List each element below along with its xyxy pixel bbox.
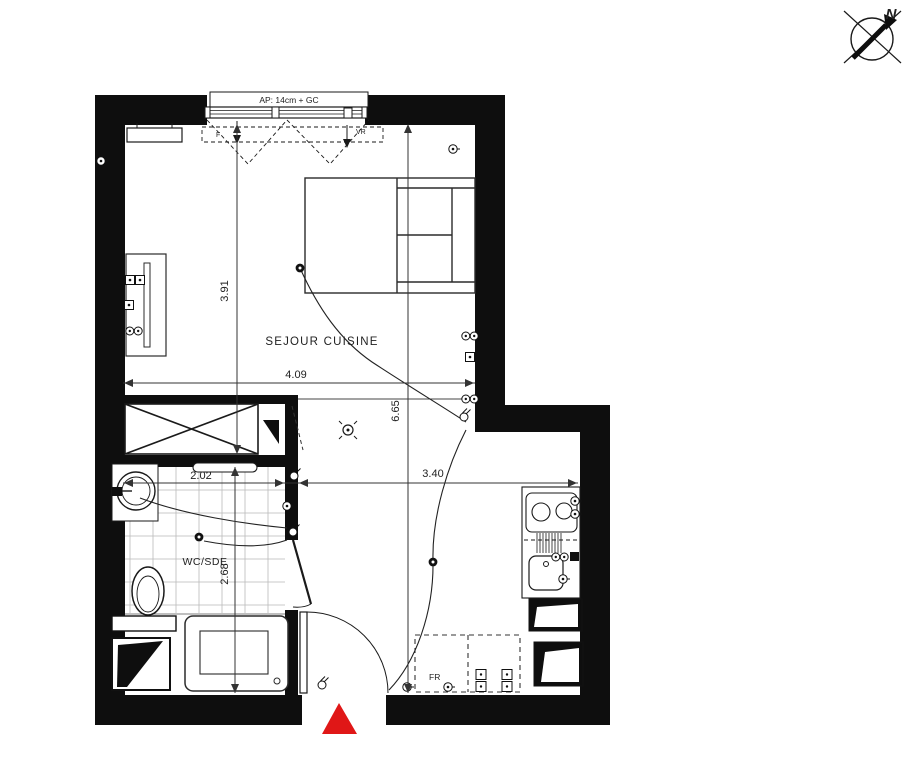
double-outlet-icon — [462, 332, 478, 340]
wall-closet-top — [123, 395, 298, 404]
wall-bottom-left — [95, 695, 302, 725]
switch-icon — [460, 409, 471, 422]
dim-living-height: 3.91 — [219, 280, 231, 301]
tv-socket-icon — [466, 353, 475, 362]
socket-icon — [126, 276, 135, 285]
stacked-outlet-icon — [476, 670, 486, 692]
duct-triangle-icon — [263, 420, 279, 444]
dim-bathroom-width: 2.02 — [190, 470, 211, 482]
socket-icon — [125, 301, 134, 310]
floor-plan-drawing: AP: 14cm + GC F VR — [0, 0, 905, 762]
wall-right-upper — [475, 95, 505, 432]
outlet-icon — [449, 145, 460, 153]
bathroom-door — [293, 540, 311, 607]
entrance-door — [300, 612, 388, 693]
dim-hall-width: 3.40 — [422, 468, 443, 480]
washbasin — [112, 464, 158, 521]
outlet-icon — [444, 683, 455, 691]
tap-icon — [112, 487, 122, 496]
window-tag-left: F — [216, 132, 220, 139]
wall-bathroom-east-upper — [285, 403, 298, 540]
toilet — [132, 567, 164, 615]
duct-shaft-right-top — [529, 599, 582, 631]
window-tag-right: VR — [356, 129, 366, 136]
fridge-label: FR — [429, 672, 440, 682]
bed — [305, 178, 475, 293]
double-outlet-icon — [462, 395, 478, 403]
duct-shaft-right-bottom — [534, 642, 583, 686]
duct-shaft-left — [112, 616, 176, 690]
floor-plan: AP: 14cm + GC F VR — [0, 0, 905, 762]
stacked-outlet-icon — [502, 670, 512, 692]
radiator — [127, 123, 182, 142]
switch-icon — [318, 677, 329, 690]
ceiling-light-bathroom-icon — [195, 533, 204, 542]
ceiling-light-hall-icon — [429, 558, 438, 567]
wall-bottom-right — [386, 695, 610, 725]
dim-living-width: 4.09 — [285, 369, 306, 381]
ceiling-light-living-icon — [339, 421, 357, 439]
ceiling-light-bed-icon — [296, 264, 305, 273]
north-label: N — [886, 6, 898, 23]
wire-bath-ceiling-light — [204, 540, 287, 546]
wall-right-lower — [580, 405, 610, 725]
hood-switch-icon — [570, 552, 579, 561]
dim-bathroom-height: 2.68 — [219, 563, 231, 584]
window-header-label: AP: 14cm + GC — [259, 95, 318, 105]
socket-icon — [136, 276, 145, 285]
room-label-living: SEJOUR CUISINE — [265, 336, 378, 348]
dim-total-height: 6.65 — [390, 400, 402, 421]
entrance-marker — [322, 703, 357, 734]
washing-machine — [185, 616, 288, 691]
north-arrow: N — [844, 6, 901, 63]
